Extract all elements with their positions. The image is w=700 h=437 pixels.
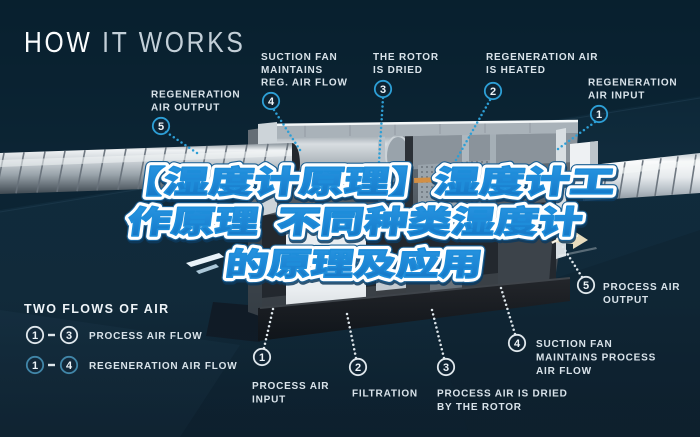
svg-text:REG. AIR FLOW: REG. AIR FLOW [261,78,348,89]
svg-text:3: 3 [66,330,72,342]
svg-text:INPUT: INPUT [252,395,286,406]
svg-text:REGENERATION AIR: REGENERATION AIR [486,52,598,63]
svg-text:OUTPUT: OUTPUT [603,295,649,306]
svg-text:4: 4 [268,96,275,108]
svg-text:PROCESS AIR: PROCESS AIR [252,381,329,392]
svg-text:THE ROTOR: THE ROTOR [373,52,439,63]
svg-text:4: 4 [66,360,73,372]
svg-text:FILTRATION: FILTRATION [352,389,418,400]
svg-text:4: 4 [514,338,521,350]
svg-text:3: 3 [380,84,386,96]
svg-text:REGENERATION: REGENERATION [151,90,240,101]
svg-text:AIR OUTPUT: AIR OUTPUT [151,103,220,114]
svg-text:SUCTION FAN: SUCTION FAN [261,52,338,63]
svg-text:5: 5 [583,280,589,292]
svg-text:AIR INPUT: AIR INPUT [588,91,645,102]
svg-text:2: 2 [355,362,361,374]
svg-text:5: 5 [158,121,164,133]
svg-text:MAINTAINS: MAINTAINS [261,65,323,76]
svg-text:2: 2 [490,86,496,98]
svg-text:TWO FLOWS OF AIR: TWO FLOWS OF AIR [24,302,170,316]
svg-text:1: 1 [32,330,38,342]
svg-text:REGENERATION AIR FLOW: REGENERATION AIR FLOW [89,361,237,372]
svg-text:1: 1 [596,109,602,121]
svg-text:AIR FLOW: AIR FLOW [536,366,592,377]
svg-text:PROCESS AIR FLOW: PROCESS AIR FLOW [89,331,203,342]
svg-text:REGENERATION: REGENERATION [588,78,677,89]
svg-text:3: 3 [443,362,449,374]
svg-text:HOW IT WORKS: HOW IT WORKS [24,26,246,58]
svg-text:1: 1 [32,360,38,372]
svg-text:MAINTAINS PROCESS: MAINTAINS PROCESS [536,353,656,364]
svg-text:IS DRIED: IS DRIED [373,65,423,76]
svg-text:SUCTION FAN: SUCTION FAN [536,339,613,350]
svg-text:PROCESS AIR: PROCESS AIR [603,282,680,293]
svg-text:BY THE ROTOR: BY THE ROTOR [437,402,522,413]
svg-text:1: 1 [259,352,265,364]
svg-text:PROCESS AIR IS DRIED: PROCESS AIR IS DRIED [437,389,568,400]
svg-text:IS HEATED: IS HEATED [486,65,546,76]
